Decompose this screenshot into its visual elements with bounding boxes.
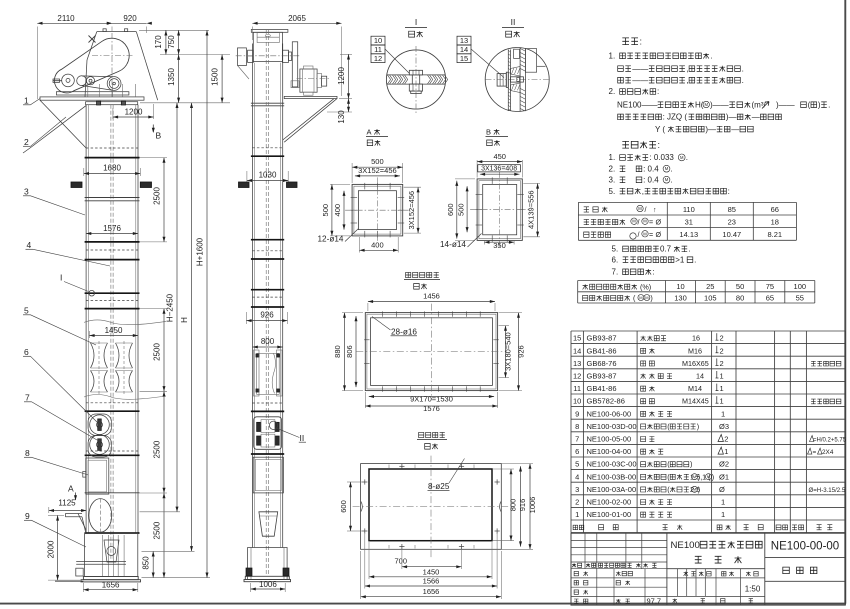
svg-text:↑: ↑ bbox=[653, 207, 657, 214]
svg-text:14: 14 bbox=[696, 372, 704, 381]
svg-text:H(: H( bbox=[695, 100, 704, 109]
svg-text:NE100-04-00: NE100-04-00 bbox=[587, 447, 632, 456]
svg-text:: 0.4: : 0.4 bbox=[643, 176, 659, 185]
svg-text:GB5782-86: GB5782-86 bbox=[587, 397, 625, 406]
svg-text:): ) bbox=[650, 294, 652, 303]
svg-text:): ) bbox=[818, 100, 821, 109]
svg-text:M14: M14 bbox=[688, 384, 702, 393]
svg-text:GB68-76: GB68-76 bbox=[587, 359, 617, 368]
svg-text:1200: 1200 bbox=[125, 108, 143, 117]
svg-text:GB41-86: GB41-86 bbox=[587, 384, 617, 393]
svg-text:3X180=540: 3X180=540 bbox=[503, 332, 512, 371]
svg-text:10: 10 bbox=[374, 36, 382, 45]
svg-text:.: . bbox=[694, 255, 696, 264]
svg-text:3X152=456: 3X152=456 bbox=[407, 191, 416, 230]
svg-text:GB41-86: GB41-86 bbox=[587, 346, 617, 355]
svg-text:M: M bbox=[645, 295, 648, 300]
svg-text:500: 500 bbox=[456, 203, 465, 216]
svg-text:Y (: Y ( bbox=[655, 125, 665, 134]
svg-text:=: = bbox=[649, 230, 653, 239]
svg-text:1: 1 bbox=[575, 510, 579, 519]
svg-text:3X152=456: 3X152=456 bbox=[358, 166, 397, 175]
svg-text:,: , bbox=[686, 76, 688, 85]
svg-text:/: / bbox=[645, 205, 647, 214]
svg-text:5: 5 bbox=[575, 460, 579, 469]
svg-text:=H/0.2+5.75: =H/0.2+5.75 bbox=[813, 438, 847, 444]
svg-text:10: 10 bbox=[573, 397, 581, 406]
svg-text:M: M bbox=[693, 474, 696, 479]
svg-text::: : bbox=[728, 187, 730, 196]
svg-text:14-ø14: 14-ø14 bbox=[440, 240, 466, 249]
svg-text:NE100-00-00: NE100-00-00 bbox=[771, 541, 839, 553]
svg-text:1: 1 bbox=[721, 510, 725, 519]
svg-text:1656: 1656 bbox=[102, 580, 120, 589]
svg-text:2X4: 2X4 bbox=[822, 449, 834, 456]
svg-text:1200: 1200 bbox=[337, 67, 346, 85]
svg-text:97.7: 97.7 bbox=[647, 596, 662, 605]
svg-text:NE100-01-00: NE100-01-00 bbox=[587, 510, 632, 519]
svg-text:/: / bbox=[638, 218, 640, 227]
svg-text:1: 1 bbox=[720, 384, 724, 393]
svg-text:)——: )—— bbox=[710, 100, 729, 109]
svg-text:.: . bbox=[742, 76, 744, 85]
svg-text:Ø2: Ø2 bbox=[719, 460, 729, 469]
svg-text:28-ø16: 28-ø16 bbox=[391, 327, 417, 336]
svg-text:(: ( bbox=[808, 100, 811, 109]
svg-text:2110: 2110 bbox=[57, 14, 75, 23]
svg-text:M16X65: M16X65 bbox=[682, 359, 709, 368]
svg-text:750: 750 bbox=[167, 35, 176, 49]
svg-text:): ) bbox=[690, 460, 692, 469]
svg-text:—: — bbox=[752, 113, 760, 122]
svg-text:0.7: 0.7 bbox=[660, 245, 672, 254]
svg-text:2500: 2500 bbox=[153, 440, 162, 458]
svg-text:13: 13 bbox=[460, 36, 468, 45]
svg-text:31: 31 bbox=[685, 218, 693, 227]
svg-text:75: 75 bbox=[766, 282, 774, 291]
svg-text:500: 500 bbox=[371, 157, 384, 166]
svg-text:500: 500 bbox=[321, 204, 330, 217]
svg-text:3.: 3. bbox=[609, 176, 616, 185]
svg-text:M: M bbox=[643, 219, 647, 224]
svg-text:1456: 1456 bbox=[423, 292, 440, 301]
svg-text:15: 15 bbox=[573, 334, 581, 343]
svg-text:,: , bbox=[686, 64, 688, 73]
svg-text:M: M bbox=[632, 219, 636, 224]
svg-text:M: M bbox=[707, 474, 710, 479]
svg-text:II: II bbox=[511, 17, 516, 27]
svg-text:1656: 1656 bbox=[423, 587, 440, 596]
svg-text:12: 12 bbox=[374, 54, 382, 63]
svg-text::: : bbox=[652, 268, 654, 277]
svg-text:23: 23 bbox=[728, 218, 736, 227]
svg-text:14.13: 14.13 bbox=[679, 230, 698, 239]
svg-text:I: I bbox=[415, 17, 417, 27]
svg-text:A: A bbox=[367, 128, 372, 137]
svg-text:H+1600: H+1600 bbox=[196, 237, 205, 266]
svg-text:NE100: NE100 bbox=[671, 540, 700, 551]
svg-text:: 0.4: : 0.4 bbox=[643, 165, 659, 174]
svg-text:Ø3: Ø3 bbox=[719, 422, 729, 431]
svg-text::: : bbox=[658, 140, 661, 150]
svg-text:110: 110 bbox=[683, 205, 695, 214]
svg-text:6: 6 bbox=[24, 347, 29, 357]
svg-text:Ø1: Ø1 bbox=[719, 472, 729, 481]
svg-text:2500: 2500 bbox=[153, 187, 162, 205]
svg-text:55: 55 bbox=[796, 293, 804, 302]
svg-text:350: 350 bbox=[493, 241, 506, 250]
svg-text:M: M bbox=[638, 206, 642, 211]
svg-text:3X136=408: 3X136=408 bbox=[481, 166, 517, 173]
svg-text:2500: 2500 bbox=[153, 343, 162, 361]
svg-text:1: 1 bbox=[24, 96, 29, 106]
svg-text:4X139=556: 4X139=556 bbox=[527, 190, 536, 229]
svg-text:M: M bbox=[639, 295, 642, 300]
svg-text:1:50: 1:50 bbox=[745, 585, 761, 594]
svg-text:H: H bbox=[180, 317, 189, 323]
svg-text:880: 880 bbox=[333, 345, 342, 358]
svg-text:M: M bbox=[680, 155, 684, 160]
svg-text:=: = bbox=[649, 218, 653, 227]
svg-text:450: 450 bbox=[493, 152, 506, 161]
svg-text:NE100-06-00: NE100-06-00 bbox=[587, 409, 632, 418]
svg-text:)—: )— bbox=[726, 113, 737, 122]
svg-text:1576: 1576 bbox=[103, 224, 121, 233]
svg-text:18: 18 bbox=[771, 218, 779, 227]
svg-text:): ) bbox=[698, 485, 700, 494]
svg-text:NE100-03D-00: NE100-03D-00 bbox=[587, 422, 637, 431]
svg-text:7: 7 bbox=[25, 393, 30, 403]
svg-text:5.: 5. bbox=[612, 245, 619, 254]
svg-text:1350: 1350 bbox=[167, 68, 176, 86]
svg-text:7: 7 bbox=[575, 435, 579, 444]
svg-text:15: 15 bbox=[460, 54, 468, 63]
svg-text:(m³/: (m³/ bbox=[752, 100, 767, 109]
svg-text:9X170=1530: 9X170=1530 bbox=[410, 395, 453, 404]
svg-text:.: . bbox=[671, 176, 673, 185]
svg-text::: : bbox=[657, 87, 659, 96]
svg-text:1: 1 bbox=[720, 397, 724, 406]
svg-text:GB93-87: GB93-87 bbox=[587, 334, 617, 343]
svg-text:—: — bbox=[731, 125, 739, 134]
svg-text:806: 806 bbox=[345, 345, 354, 358]
svg-text:5: 5 bbox=[24, 306, 29, 316]
svg-text:A: A bbox=[68, 484, 74, 494]
svg-text:): ) bbox=[712, 472, 714, 481]
svg-text:85: 85 bbox=[728, 205, 736, 214]
svg-text:4: 4 bbox=[575, 472, 579, 481]
svg-text:100: 100 bbox=[794, 282, 807, 291]
svg-text:1450: 1450 bbox=[423, 567, 440, 576]
svg-text:M: M bbox=[665, 177, 669, 182]
svg-text:1125: 1125 bbox=[58, 499, 76, 508]
svg-text:2.: 2. bbox=[609, 87, 616, 96]
svg-text:5.: 5. bbox=[609, 187, 616, 196]
svg-text:9: 9 bbox=[25, 511, 30, 521]
svg-text:M: M bbox=[704, 102, 708, 107]
svg-text:10: 10 bbox=[676, 282, 684, 291]
svg-text:2: 2 bbox=[724, 435, 728, 444]
svg-text:.: . bbox=[710, 52, 712, 61]
svg-text:Ø=H-3.15/2.5: Ø=H-3.15/2.5 bbox=[809, 487, 846, 494]
svg-text:6.: 6. bbox=[612, 255, 619, 264]
svg-text:2: 2 bbox=[720, 359, 724, 368]
svg-text:M14X45: M14X45 bbox=[682, 397, 709, 406]
svg-text:3: 3 bbox=[24, 187, 29, 197]
svg-text:12-ø14: 12-ø14 bbox=[318, 234, 344, 243]
svg-text:1.: 1. bbox=[609, 153, 616, 162]
svg-text:400: 400 bbox=[333, 204, 342, 217]
svg-text:Ø: Ø bbox=[656, 218, 662, 227]
svg-text:NE100-05-00: NE100-05-00 bbox=[587, 435, 632, 444]
svg-text:50: 50 bbox=[736, 282, 744, 291]
svg-text:——: —— bbox=[632, 76, 648, 85]
svg-text:——: —— bbox=[632, 64, 648, 73]
svg-text:M: M bbox=[693, 487, 696, 492]
svg-text:): ) bbox=[697, 422, 699, 431]
svg-text:B: B bbox=[156, 131, 162, 141]
svg-text:130: 130 bbox=[337, 110, 346, 124]
svg-text:105: 105 bbox=[704, 293, 717, 302]
svg-text:.: . bbox=[742, 64, 744, 73]
svg-text:6: 6 bbox=[575, 447, 579, 456]
svg-text:1576: 1576 bbox=[423, 404, 440, 413]
svg-text:NE100-03B-00: NE100-03B-00 bbox=[587, 472, 637, 481]
svg-text:66: 66 bbox=[771, 205, 779, 214]
svg-text:916: 916 bbox=[518, 499, 527, 512]
svg-text:1: 1 bbox=[721, 409, 725, 418]
svg-text:Ø: Ø bbox=[719, 485, 725, 494]
svg-text:.: . bbox=[671, 165, 673, 174]
svg-text:B: B bbox=[486, 128, 491, 137]
svg-text:400: 400 bbox=[371, 240, 384, 249]
svg-text:Ø: Ø bbox=[656, 230, 662, 239]
svg-text:,: , bbox=[642, 187, 644, 196]
svg-text:2: 2 bbox=[720, 334, 724, 343]
svg-text:.: . bbox=[828, 100, 830, 109]
svg-text:I: I bbox=[60, 273, 62, 283]
svg-text:M16: M16 bbox=[688, 346, 702, 355]
svg-text:/: / bbox=[638, 230, 640, 239]
svg-text:800: 800 bbox=[509, 499, 518, 512]
svg-text:1: 1 bbox=[721, 498, 725, 507]
svg-text:1: 1 bbox=[724, 447, 728, 456]
svg-text:1680: 1680 bbox=[103, 164, 121, 173]
svg-text:.: . bbox=[689, 245, 691, 254]
svg-text:=: = bbox=[813, 449, 817, 456]
svg-text:600: 600 bbox=[446, 203, 455, 216]
svg-text:2000: 2000 bbox=[47, 540, 56, 558]
svg-text:NE100-02-00: NE100-02-00 bbox=[587, 498, 632, 507]
svg-text:: 0.033: : 0.033 bbox=[649, 153, 674, 162]
svg-text:1006: 1006 bbox=[528, 497, 537, 514]
svg-text:12: 12 bbox=[573, 372, 581, 381]
svg-text:: JZQ (: : JZQ ( bbox=[663, 113, 688, 122]
svg-text:H−2450: H−2450 bbox=[166, 293, 175, 322]
svg-text:M: M bbox=[665, 166, 669, 171]
svg-text:1500: 1500 bbox=[210, 68, 219, 86]
svg-text::: : bbox=[640, 37, 643, 47]
svg-text:2: 2 bbox=[575, 498, 579, 507]
svg-text:850: 850 bbox=[142, 556, 151, 570]
svg-text:700: 700 bbox=[395, 557, 408, 566]
svg-text:130: 130 bbox=[674, 293, 687, 302]
svg-text:>1: >1 bbox=[675, 255, 685, 264]
svg-text:16: 16 bbox=[692, 334, 700, 343]
svg-text:)—: )— bbox=[705, 125, 716, 134]
svg-text:1: 1 bbox=[720, 372, 724, 381]
svg-text:920: 920 bbox=[123, 14, 137, 23]
svg-text:)——: )—— bbox=[776, 100, 795, 109]
svg-text:3: 3 bbox=[575, 485, 579, 494]
svg-text:65: 65 bbox=[766, 293, 774, 302]
svg-text:II: II bbox=[300, 433, 305, 443]
svg-text:M: M bbox=[643, 231, 647, 236]
svg-text:926: 926 bbox=[260, 311, 274, 320]
svg-text:2.: 2. bbox=[609, 165, 616, 174]
svg-text:NE100-03A-00: NE100-03A-00 bbox=[587, 485, 637, 494]
svg-text:1006: 1006 bbox=[259, 580, 277, 589]
svg-text:NE100——: NE100—— bbox=[617, 100, 657, 109]
svg-text:10.47: 10.47 bbox=[722, 230, 741, 239]
svg-text:926: 926 bbox=[516, 345, 525, 358]
svg-text:1.: 1. bbox=[609, 52, 616, 61]
svg-text:2: 2 bbox=[24, 137, 29, 147]
svg-text:170: 170 bbox=[154, 35, 163, 49]
svg-text:7.: 7. bbox=[612, 268, 619, 277]
svg-text:NE100-03C-00: NE100-03C-00 bbox=[587, 460, 637, 469]
svg-text:9: 9 bbox=[575, 409, 579, 418]
svg-text:(%): (%) bbox=[640, 282, 651, 291]
svg-text:4: 4 bbox=[27, 240, 32, 250]
svg-text:.: . bbox=[686, 153, 688, 162]
svg-text:800: 800 bbox=[261, 337, 275, 346]
svg-text:14: 14 bbox=[573, 346, 581, 355]
svg-text:11: 11 bbox=[374, 45, 382, 54]
svg-text:2500: 2500 bbox=[153, 521, 162, 539]
svg-text:600: 600 bbox=[339, 500, 348, 513]
svg-text:13: 13 bbox=[573, 359, 581, 368]
svg-text:14: 14 bbox=[460, 45, 468, 54]
svg-text:2065: 2065 bbox=[288, 14, 306, 23]
svg-text:80: 80 bbox=[736, 293, 744, 302]
svg-text:8: 8 bbox=[25, 448, 30, 458]
svg-text:8-ø25: 8-ø25 bbox=[428, 482, 450, 491]
svg-text:8.21: 8.21 bbox=[767, 230, 782, 239]
svg-text:GB93-87: GB93-87 bbox=[587, 372, 617, 381]
svg-text:11: 11 bbox=[573, 384, 581, 393]
svg-text:1450: 1450 bbox=[105, 326, 123, 335]
svg-text:8: 8 bbox=[575, 422, 579, 431]
svg-text:2: 2 bbox=[720, 346, 724, 355]
svg-text:25: 25 bbox=[706, 282, 714, 291]
svg-text:1566: 1566 bbox=[423, 577, 440, 586]
svg-text:1030: 1030 bbox=[259, 171, 277, 180]
